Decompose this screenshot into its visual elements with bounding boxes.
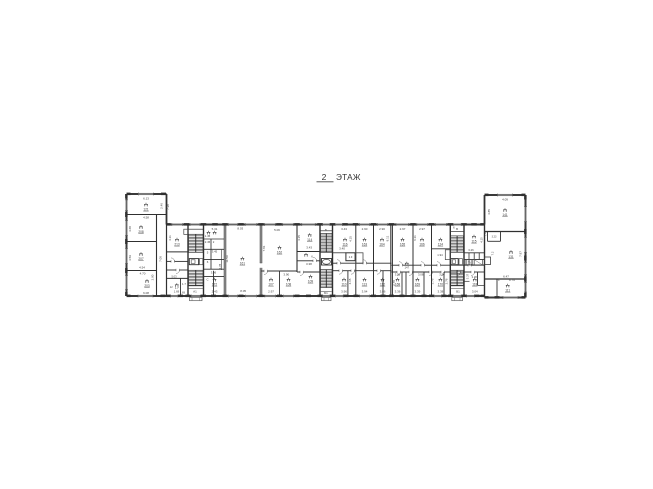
svg-text:4.15: 4.15 bbox=[348, 278, 352, 284]
svg-text:1.78: 1.78 bbox=[218, 263, 222, 269]
svg-text:141: 141 bbox=[502, 213, 508, 217]
svg-text:В1: В1 bbox=[456, 290, 460, 294]
svg-text:3.23: 3.23 bbox=[492, 236, 497, 239]
svg-text:165: 165 bbox=[400, 242, 406, 246]
svg-text:4.15: 4.15 bbox=[297, 235, 301, 241]
svg-text:6.11: 6.11 bbox=[413, 235, 417, 241]
svg-text:5.03: 5.03 bbox=[171, 275, 177, 279]
svg-text:3.43: 3.43 bbox=[306, 245, 312, 249]
svg-text:2.45: 2.45 bbox=[205, 240, 211, 244]
svg-text:109: 109 bbox=[308, 279, 314, 283]
svg-text:115: 115 bbox=[471, 239, 476, 243]
svg-text:3.45: 3.45 bbox=[212, 250, 218, 254]
svg-text:3.86: 3.86 bbox=[380, 289, 386, 293]
svg-text:3.38: 3.38 bbox=[437, 289, 443, 293]
svg-text:107: 107 bbox=[268, 282, 274, 286]
svg-text:3.28: 3.28 bbox=[472, 275, 478, 279]
svg-text:3.40: 3.40 bbox=[339, 247, 345, 251]
svg-text:4.54: 4.54 bbox=[139, 265, 145, 269]
svg-text:114: 114 bbox=[307, 238, 312, 242]
svg-text:2.78: 2.78 bbox=[392, 280, 396, 286]
svg-text:147: 147 bbox=[404, 266, 409, 270]
svg-text:Б1: Б1 bbox=[324, 291, 328, 295]
svg-text:3.96: 3.96 bbox=[341, 289, 347, 293]
svg-text:8.05: 8.05 bbox=[240, 289, 246, 293]
svg-text:3.04: 3.04 bbox=[472, 289, 478, 293]
svg-text:7.2: 7.2 bbox=[490, 251, 494, 255]
svg-text:1.45: 1.45 bbox=[205, 234, 211, 238]
svg-text:3.90: 3.90 bbox=[439, 272, 445, 276]
svg-text:2.90: 2.90 bbox=[379, 227, 385, 231]
svg-text:2.97: 2.97 bbox=[268, 289, 274, 293]
svg-text:170: 170 bbox=[438, 282, 444, 286]
svg-text:4.70: 4.70 bbox=[140, 272, 146, 276]
svg-text:7.41: 7.41 bbox=[483, 230, 487, 236]
svg-text:162: 162 bbox=[277, 250, 283, 254]
svg-text:164: 164 bbox=[379, 242, 385, 246]
svg-text:2.90: 2.90 bbox=[362, 227, 368, 231]
svg-text:5.37: 5.37 bbox=[465, 273, 469, 279]
svg-text:4.85: 4.85 bbox=[487, 209, 491, 215]
svg-text:В: В bbox=[456, 227, 458, 231]
svg-text:3.76: 3.76 bbox=[430, 278, 434, 284]
svg-text:113: 113 bbox=[362, 282, 367, 286]
svg-text:С: С bbox=[206, 278, 208, 282]
svg-text:112: 112 bbox=[380, 282, 385, 286]
svg-text:3.36: 3.36 bbox=[395, 289, 401, 293]
svg-text:7.38: 7.38 bbox=[166, 204, 170, 210]
svg-text:5.06: 5.06 bbox=[274, 228, 280, 232]
svg-text:163: 163 bbox=[362, 242, 368, 246]
svg-text:1.7: 1.7 bbox=[182, 282, 186, 286]
svg-text:108: 108 bbox=[286, 282, 292, 286]
svg-text:118: 118 bbox=[472, 282, 477, 286]
svg-text:8.03: 8.03 bbox=[237, 227, 243, 231]
svg-text:161: 161 bbox=[240, 261, 246, 265]
svg-text:166: 166 bbox=[419, 242, 425, 246]
svg-text:4.11: 4.11 bbox=[168, 235, 172, 241]
svg-text:1.69: 1.69 bbox=[180, 291, 186, 295]
svg-text:6.08: 6.08 bbox=[143, 291, 149, 295]
svg-text:124: 124 bbox=[438, 242, 444, 246]
svg-text:111: 111 bbox=[505, 288, 510, 292]
svg-text:4.59: 4.59 bbox=[128, 255, 132, 261]
svg-text:5.31: 5.31 bbox=[212, 227, 218, 231]
svg-text:7.08: 7.08 bbox=[159, 256, 163, 262]
svg-text:3.08: 3.08 bbox=[418, 272, 424, 276]
svg-text:2: 2 bbox=[322, 172, 327, 182]
svg-text:Б: Б bbox=[325, 228, 327, 232]
svg-text:3.26: 3.26 bbox=[468, 248, 474, 252]
svg-text:ЭТАЖ: ЭТАЖ bbox=[336, 173, 361, 182]
svg-text:2.97: 2.97 bbox=[419, 227, 425, 231]
svg-text:4.15: 4.15 bbox=[480, 237, 484, 243]
svg-text:172: 172 bbox=[212, 282, 218, 286]
svg-text:207: 207 bbox=[138, 257, 144, 261]
svg-text:203: 203 bbox=[144, 284, 150, 288]
svg-text:2.78: 2.78 bbox=[445, 278, 449, 284]
svg-text:110: 110 bbox=[341, 282, 346, 286]
svg-text:131: 131 bbox=[508, 255, 514, 259]
svg-text:3.94: 3.94 bbox=[362, 289, 368, 293]
svg-text:1.7: 1.7 bbox=[175, 286, 179, 290]
svg-text:3.38: 3.38 bbox=[306, 262, 312, 266]
svg-text:213: 213 bbox=[174, 242, 180, 246]
svg-text:4.58: 4.58 bbox=[143, 216, 149, 220]
svg-text:3.90: 3.90 bbox=[395, 272, 401, 276]
svg-text:4.74: 4.74 bbox=[509, 278, 515, 282]
svg-text:1.94: 1.94 bbox=[437, 253, 443, 257]
svg-text:208: 208 bbox=[138, 230, 144, 234]
svg-text:4.68: 4.68 bbox=[128, 226, 132, 232]
svg-text:2.46: 2.46 bbox=[160, 203, 164, 209]
svg-text:А1: А1 bbox=[193, 290, 197, 294]
svg-text:7.87: 7.87 bbox=[519, 251, 523, 257]
svg-text:8.11: 8.11 bbox=[385, 235, 389, 241]
svg-text:11.59: 11.59 bbox=[225, 255, 229, 263]
svg-text:2.9: 2.9 bbox=[349, 256, 353, 259]
svg-text:3.43: 3.43 bbox=[341, 227, 347, 231]
svg-text:2.97: 2.97 bbox=[400, 227, 406, 231]
svg-text:2.43: 2.43 bbox=[212, 289, 218, 293]
svg-text:3.39: 3.39 bbox=[414, 289, 420, 293]
svg-text:4.09: 4.09 bbox=[502, 198, 508, 202]
svg-text:7.81: 7.81 bbox=[262, 245, 266, 251]
svg-text:4.15: 4.15 bbox=[349, 236, 353, 242]
svg-text:169: 169 bbox=[415, 282, 421, 286]
svg-text:3.96: 3.96 bbox=[211, 270, 217, 274]
svg-text:6.13: 6.13 bbox=[143, 197, 149, 201]
svg-text:121: 121 bbox=[143, 207, 149, 211]
svg-text:3.90: 3.90 bbox=[283, 272, 289, 276]
svg-text:2.90: 2.90 bbox=[151, 274, 155, 280]
